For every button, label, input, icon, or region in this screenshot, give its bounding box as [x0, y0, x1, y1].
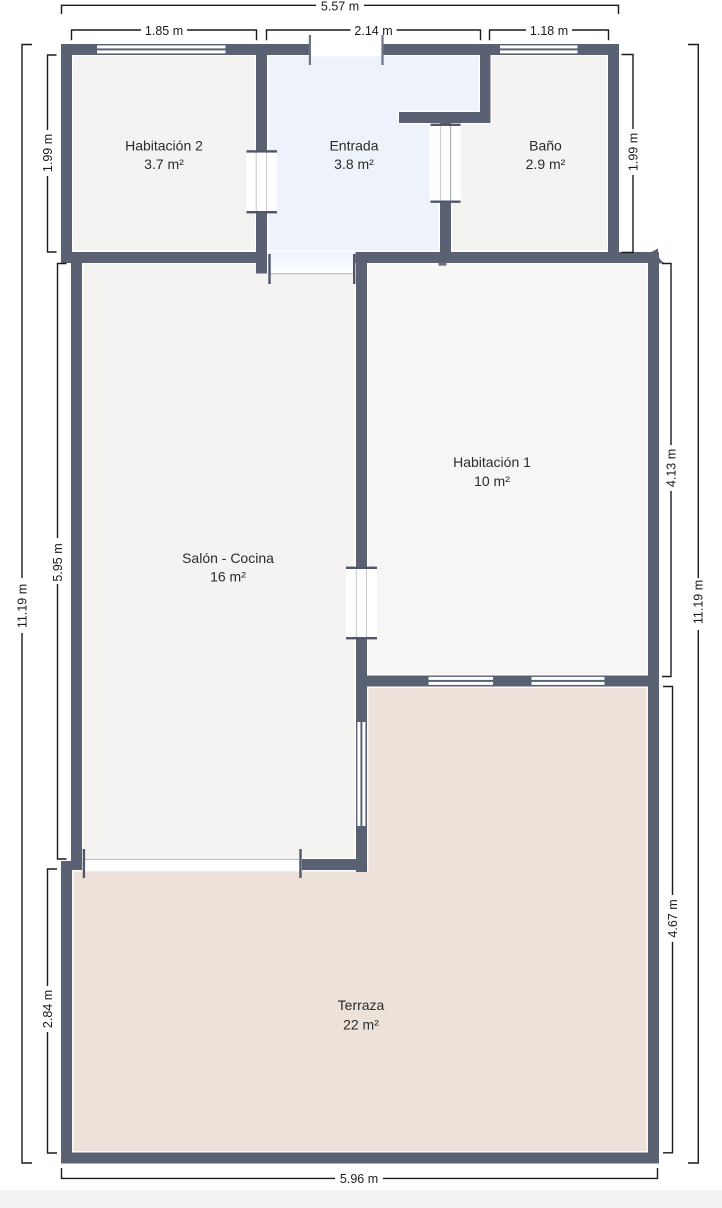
svg-text:1.99 m: 1.99 m — [626, 133, 640, 171]
svg-text:16 m²: 16 m² — [210, 569, 246, 585]
svg-text:5.57 m: 5.57 m — [321, 0, 359, 13]
svg-text:4.13 m: 4.13 m — [664, 449, 678, 487]
svg-text:5.96 m: 5.96 m — [340, 1172, 378, 1186]
svg-text:Baño: Baño — [529, 138, 562, 154]
svg-text:4.67 m: 4.67 m — [666, 899, 680, 937]
svg-text:Entrada: Entrada — [329, 138, 378, 154]
svg-text:2.9 m²: 2.9 m² — [526, 156, 566, 172]
svg-text:2.14 m: 2.14 m — [354, 24, 392, 38]
svg-text:Terraza: Terraza — [338, 997, 385, 1013]
svg-text:2.84 m: 2.84 m — [41, 990, 55, 1028]
svg-text:3.8 m²: 3.8 m² — [334, 156, 374, 172]
svg-text:Habitación 1: Habitación 1 — [453, 454, 531, 470]
svg-text:22 m²: 22 m² — [343, 1017, 379, 1033]
svg-text:1.99 m: 1.99 m — [41, 134, 55, 172]
svg-text:5.95 m: 5.95 m — [51, 543, 65, 581]
svg-text:3.7 m²: 3.7 m² — [144, 156, 184, 172]
svg-text:Salón - Cocina: Salón - Cocina — [182, 550, 274, 566]
svg-text:11.19 m: 11.19 m — [692, 580, 706, 624]
svg-text:10 m²: 10 m² — [474, 473, 510, 489]
svg-text:Habitación 2: Habitación 2 — [125, 138, 203, 154]
svg-text:1.18 m: 1.18 m — [530, 24, 568, 38]
svg-text:11.19 m: 11.19 m — [15, 584, 29, 628]
svg-text:1.85 m: 1.85 m — [145, 24, 183, 38]
